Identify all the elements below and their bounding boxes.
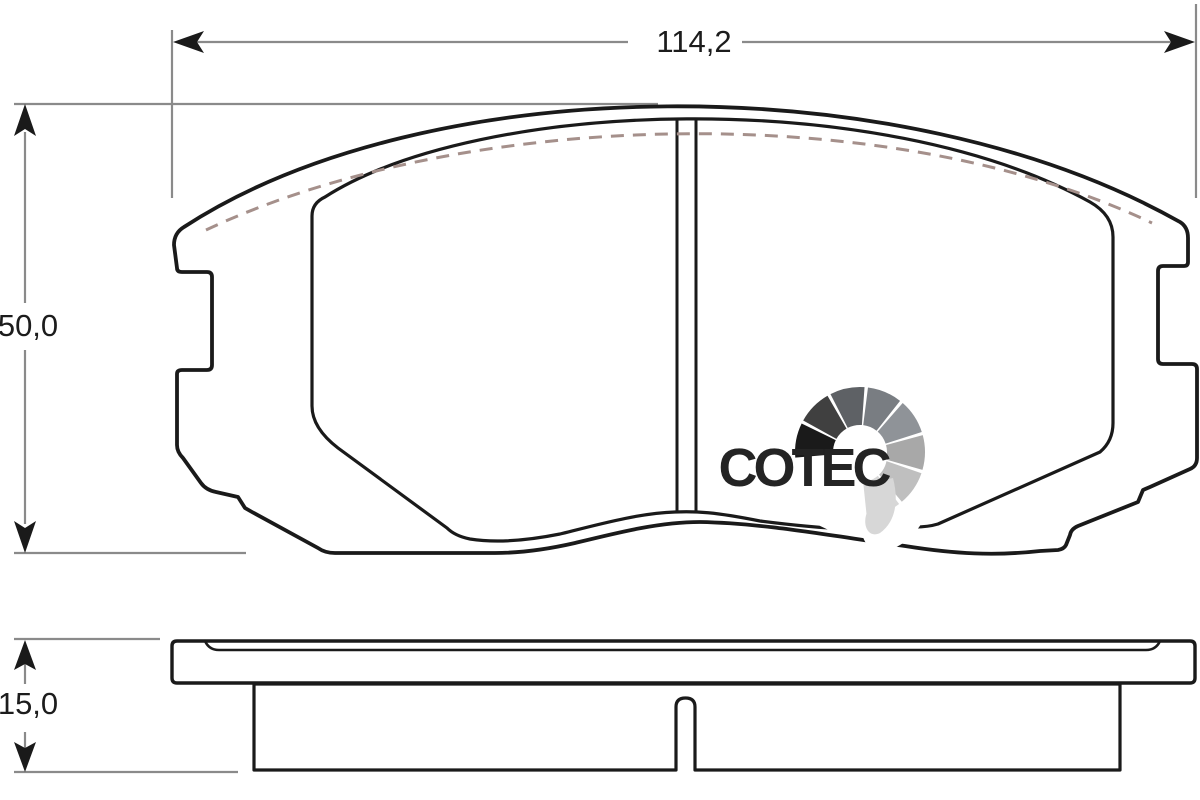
fan-segment-4 (866, 406, 889, 416)
logo-wordmark: COTEC (719, 438, 891, 498)
backing-plate-side (172, 641, 1195, 683)
width-dimension-label: 114,2 (656, 24, 731, 59)
height-arrow-bottom (14, 521, 36, 553)
drawing-canvas: COTEC 114,2 50,0 15,0 (0, 0, 1200, 800)
fan-segment-3 (839, 406, 863, 411)
front-view (174, 106, 1197, 553)
height-dimension-label: 50,0 (0, 308, 58, 343)
fan-segment-5 (890, 417, 904, 438)
fan-segment-2 (820, 412, 837, 430)
fan-segment-6 (904, 440, 906, 465)
side-view (172, 641, 1195, 770)
height-arrow-top (14, 104, 36, 136)
brake-pad-drawing: COTEC 114,2 50,0 15,0 (0, 0, 1200, 800)
friction-material-side (254, 684, 1120, 770)
thickness-dimension-label: 15,0 (0, 686, 58, 721)
